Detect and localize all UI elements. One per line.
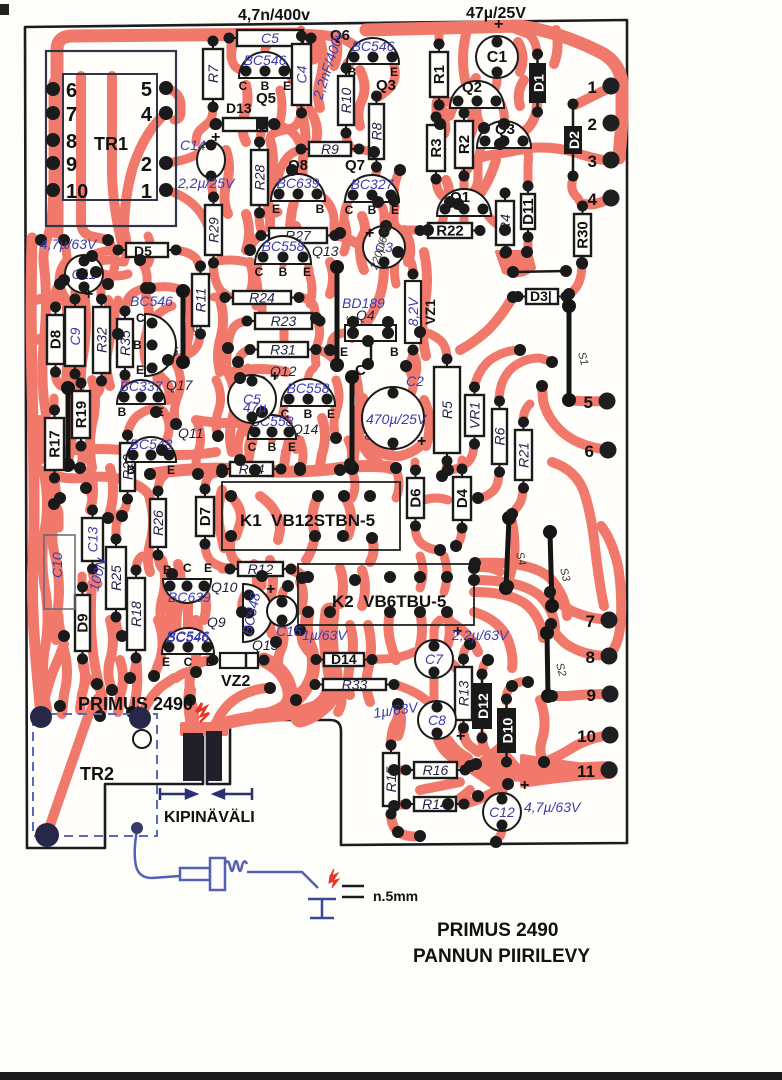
svg-text:C12: C12 [489,804,515,820]
svg-text:R28: R28 [252,164,268,190]
svg-text:D2: D2 [566,131,582,149]
svg-text:B: B [348,65,357,79]
svg-text:470µ/25V: 470µ/25V [366,411,428,427]
svg-text:R5: R5 [439,401,455,419]
svg-text:R21: R21 [516,442,532,468]
svg-text:VZ1: VZ1 [422,299,438,325]
svg-text:4: 4 [588,190,598,209]
svg-text:R25: R25 [108,565,124,591]
svg-text:BC546: BC546 [244,52,287,68]
svg-text:E: E [162,655,170,669]
svg-text:BC546: BC546 [130,293,173,309]
svg-text:D7: D7 [197,507,214,526]
svg-text:C: C [184,655,193,669]
svg-text:BC639: BC639 [277,175,320,191]
svg-text:R9: R9 [321,141,339,157]
svg-text:C5: C5 [261,30,279,46]
svg-text:2,2µ/25V: 2,2µ/25V [177,175,236,191]
svg-text:Q2: Q2 [462,79,482,96]
svg-text:+: + [84,286,93,303]
svg-text:R31: R31 [270,342,296,358]
svg-text:4,7n/400v: 4,7n/400v [238,7,310,24]
svg-text:+: + [417,433,426,450]
svg-text:C10: C10 [49,552,65,578]
svg-text:+: + [456,728,465,745]
svg-text:C: C [239,79,248,93]
svg-text:Q3: Q3 [376,77,396,94]
svg-text:11: 11 [577,762,595,781]
svg-text:C14: C14 [180,137,206,153]
svg-text:Q17: Q17 [166,377,194,393]
svg-text:C8: C8 [428,712,446,728]
svg-text:D3|: D3| [530,288,552,304]
svg-text:7: 7 [66,104,77,126]
svg-text:C13: C13 [85,526,101,552]
svg-text:R10: R10 [338,87,354,113]
svg-text:B: B [316,202,325,216]
svg-text:8: 8 [586,648,595,667]
svg-text:47µ: 47µ [243,399,267,415]
svg-text:B: B [304,407,313,421]
svg-text:E: E [303,265,311,279]
svg-text:R30: R30 [575,221,592,249]
svg-text:BD189: BD189 [342,295,385,311]
svg-text:E: E [327,407,335,421]
svg-text:E: E [136,363,144,377]
svg-text:Q13: Q13 [312,243,339,259]
svg-text:C: C [136,311,145,325]
svg-text:BC639: BC639 [168,589,211,605]
svg-text:1: 1 [588,78,597,97]
svg-text:C9: C9 [67,327,83,345]
svg-text:C: C [255,265,264,279]
svg-text:6: 6 [585,442,594,461]
svg-text:Q11: Q11 [178,425,203,441]
svg-text:D10: D10 [500,717,516,743]
svg-text:B: B [279,265,288,279]
svg-text:D12: D12 [475,693,491,719]
svg-text:R17: R17 [47,430,64,458]
svg-text:Q10: Q10 [211,579,238,595]
svg-text:5: 5 [141,79,152,101]
svg-text:B: B [390,345,399,359]
svg-text:D9: D9 [75,613,92,632]
svg-text:BC327: BC327 [351,176,395,192]
svg-text:R8: R8 [369,122,385,140]
svg-text:n.5mm: n.5mm [373,888,418,904]
svg-text:C7: C7 [425,651,444,667]
svg-text:Q7: Q7 [345,157,365,174]
svg-text:B: B [118,405,127,419]
svg-text:6: 6 [66,80,77,102]
svg-text:1: 1 [141,181,152,203]
svg-text:D13: D13 [226,100,252,116]
svg-text:4,7µ/63V: 4,7µ/63V [40,236,98,252]
svg-text:R32: R32 [94,327,110,353]
svg-text:R18: R18 [128,601,144,627]
svg-text:C2: C2 [406,373,424,389]
svg-text:E: E [272,202,280,216]
svg-text:E: E [167,463,175,477]
svg-text:E: E [340,345,348,359]
svg-text:R6: R6 [492,427,508,445]
svg-text:BC546: BC546 [352,38,395,54]
svg-text:C: C [183,561,192,575]
svg-text:10: 10 [66,181,88,203]
svg-text:D1: D1 [531,74,547,92]
svg-text:Q5: Q5 [256,90,276,107]
svg-text:2,2µ/63V: 2,2µ/63V [451,627,510,643]
svg-text:C: C [345,203,354,217]
svg-text:+: + [365,225,374,242]
svg-text:+: + [266,581,275,598]
svg-text:B: B [206,655,215,669]
svg-text:+: + [520,777,529,794]
svg-text:R29: R29 [206,217,222,243]
svg-text:R11: R11 [193,288,209,313]
svg-text:+: + [270,368,279,385]
svg-text:47µ/25V: 47µ/25V [466,5,526,22]
svg-text:R3: R3 [428,138,445,157]
svg-text:C1: C1 [487,49,508,66]
svg-text:R2: R2 [456,135,473,154]
svg-text:D4: D4 [454,488,471,508]
svg-text:1µ/63V: 1µ/63V [302,627,348,643]
svg-text:8,2V: 8,2V [405,296,421,326]
svg-text:R22: R22 [436,223,464,240]
svg-text:KIPINÄVÄLI: KIPINÄVÄLI [164,808,255,826]
svg-text:D11: D11 [520,198,537,225]
svg-text:E: E [204,561,212,575]
svg-text:R7: R7 [205,64,221,83]
svg-text:TR2: TR2 [80,764,114,784]
svg-text:C15: C15 [276,623,302,639]
svg-text:PRIMUS 2490: PRIMUS 2490 [437,920,558,941]
svg-text:Q14: Q14 [292,421,319,437]
svg-text:4,7µ/63V: 4,7µ/63V [524,799,582,815]
svg-text:Q9: Q9 [207,614,226,630]
svg-text:2: 2 [141,154,152,176]
svg-text:D8: D8 [48,330,65,349]
svg-text:10: 10 [577,727,596,746]
svg-text:K1 VB12STBN-5: K1 VB12STBN-5 [240,511,375,530]
svg-text:3: 3 [588,152,597,171]
svg-text:VR1: VR1 [467,402,483,429]
svg-text:D14: D14 [331,651,357,667]
svg-text:4: 4 [141,104,153,126]
svg-text:7: 7 [586,612,595,631]
svg-text:R16: R16 [423,762,449,778]
svg-text:8: 8 [66,131,77,153]
svg-text:TR1: TR1 [94,134,128,154]
svg-text:BC558: BC558 [287,380,330,396]
svg-text:R13: R13 [456,680,472,706]
svg-text:R24: R24 [249,290,275,306]
svg-text:B: B [127,463,136,477]
svg-text:B: B [268,440,277,454]
svg-text:5: 5 [584,393,593,412]
svg-text:9: 9 [587,686,596,705]
svg-text:C4: C4 [294,65,310,83]
svg-text:9: 9 [66,154,77,176]
svg-text:BC558: BC558 [262,238,305,254]
svg-text:R19: R19 [73,401,90,429]
svg-text:B: B [133,338,142,352]
svg-text:R1: R1 [431,65,448,84]
svg-text:R26: R26 [150,510,166,536]
svg-text:PANNUN PIIRILEVY: PANNUN PIIRILEVY [413,946,590,967]
svg-text:D6: D6 [408,488,425,507]
svg-text:E: E [288,440,296,454]
svg-text:BC546: BC546 [166,629,209,645]
svg-text:C: C [248,440,257,454]
svg-text:E: E [283,79,291,93]
svg-text:VZ2: VZ2 [221,673,250,690]
svg-text:BC337: BC337 [120,378,164,394]
svg-text:R23: R23 [271,313,297,329]
svg-text:R33: R33 [342,677,368,693]
svg-text:2: 2 [588,115,597,134]
